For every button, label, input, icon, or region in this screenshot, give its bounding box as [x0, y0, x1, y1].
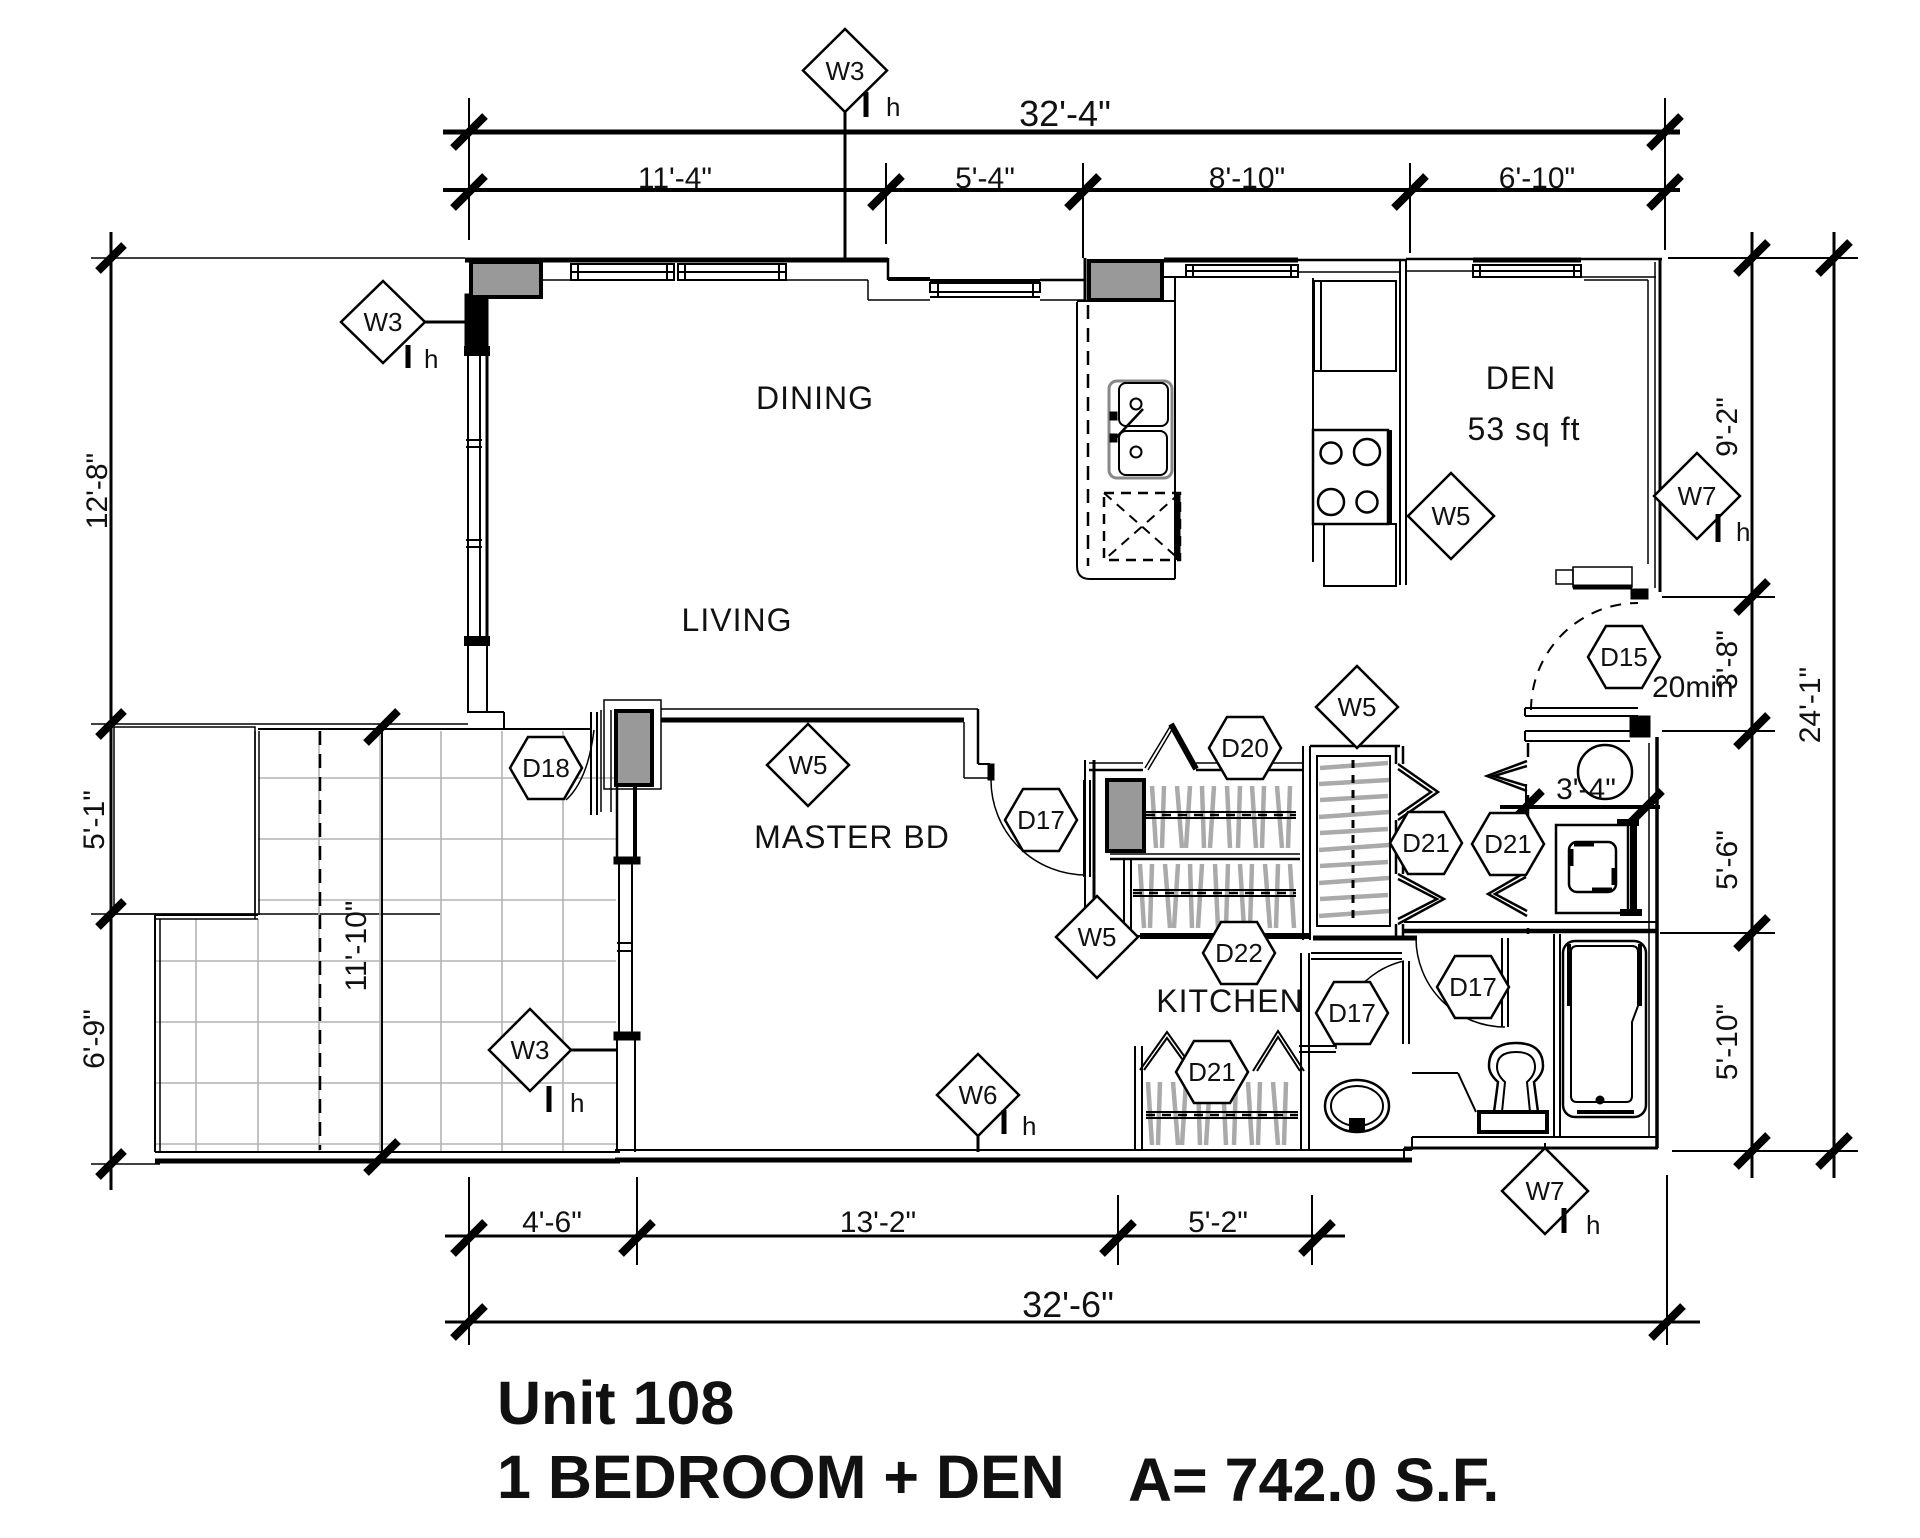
- svg-text:W6: W6: [959, 1080, 998, 1110]
- svg-text:5'-2": 5'-2": [1188, 1206, 1248, 1239]
- svg-text:11'-4": 11'-4": [638, 162, 712, 195]
- svg-text:5'-6": 5'-6": [1711, 830, 1744, 890]
- svg-text:5'-1": 5'-1": [78, 790, 111, 850]
- svg-text:W5: W5: [1432, 501, 1471, 531]
- svg-text:D17: D17: [1449, 972, 1497, 1002]
- svg-text:W7: W7: [1526, 1176, 1565, 1206]
- svg-text:DEN: DEN: [1486, 360, 1557, 396]
- svg-text:A= 742.0 S.F.: A= 742.0 S.F.: [1128, 1446, 1499, 1514]
- svg-text:DINING: DINING: [756, 380, 874, 416]
- svg-text:D22: D22: [1215, 938, 1263, 968]
- svg-text:D21: D21: [1188, 1057, 1236, 1087]
- svg-text:5'-10": 5'-10": [1711, 1004, 1744, 1080]
- svg-text:D18: D18: [522, 753, 570, 783]
- svg-text:W5: W5: [1338, 692, 1377, 722]
- svg-text:W5: W5: [789, 750, 828, 780]
- svg-text:D15: D15: [1600, 642, 1648, 672]
- svg-text:W7: W7: [1678, 481, 1717, 511]
- svg-text:9'-2": 9'-2": [1711, 397, 1744, 457]
- svg-text:6'-9": 6'-9": [78, 1009, 111, 1069]
- svg-text:D17: D17: [1017, 805, 1065, 835]
- svg-text:W3: W3: [511, 1035, 550, 1065]
- svg-text:13'-2": 13'-2": [840, 1206, 916, 1239]
- svg-text:32'-4": 32'-4": [1019, 93, 1111, 134]
- svg-text:8'-10": 8'-10": [1209, 162, 1285, 195]
- svg-text:1 BEDROOM + DEN: 1 BEDROOM + DEN: [497, 1443, 1065, 1511]
- svg-text:32'-6": 32'-6": [1022, 1284, 1114, 1325]
- svg-text:D20: D20: [1221, 733, 1269, 763]
- svg-text:24'-1": 24'-1": [1794, 667, 1827, 743]
- svg-text:W5: W5: [1078, 922, 1117, 952]
- svg-text:h: h: [1022, 1111, 1036, 1141]
- svg-text:4'-6": 4'-6": [522, 1206, 582, 1239]
- svg-text:12'-8": 12'-8": [81, 453, 114, 529]
- svg-text:D17: D17: [1328, 998, 1376, 1028]
- svg-text:Unit 108: Unit 108: [497, 1369, 734, 1437]
- svg-text:3'-4": 3'-4": [1556, 773, 1616, 806]
- svg-text:D21: D21: [1402, 828, 1450, 858]
- svg-text:h: h: [1736, 517, 1750, 547]
- svg-text:W3: W3: [364, 307, 403, 337]
- svg-text:h: h: [424, 344, 438, 374]
- svg-text:KITCHEN: KITCHEN: [1156, 983, 1303, 1019]
- svg-text:h: h: [570, 1088, 584, 1118]
- svg-text:6'-10": 6'-10": [1499, 162, 1575, 195]
- svg-text:5'-4": 5'-4": [955, 162, 1015, 195]
- svg-text:20min: 20min: [1652, 671, 1734, 704]
- svg-text:h: h: [886, 92, 900, 122]
- svg-text:53 sq ft: 53 sq ft: [1468, 411, 1581, 447]
- svg-text:W3: W3: [826, 56, 865, 86]
- svg-text:MASTER BD: MASTER BD: [754, 819, 950, 855]
- svg-text:h: h: [1586, 1210, 1600, 1240]
- svg-text:LIVING: LIVING: [682, 602, 793, 638]
- svg-text:11'-10": 11'-10": [340, 901, 373, 992]
- svg-text:D21: D21: [1484, 829, 1532, 859]
